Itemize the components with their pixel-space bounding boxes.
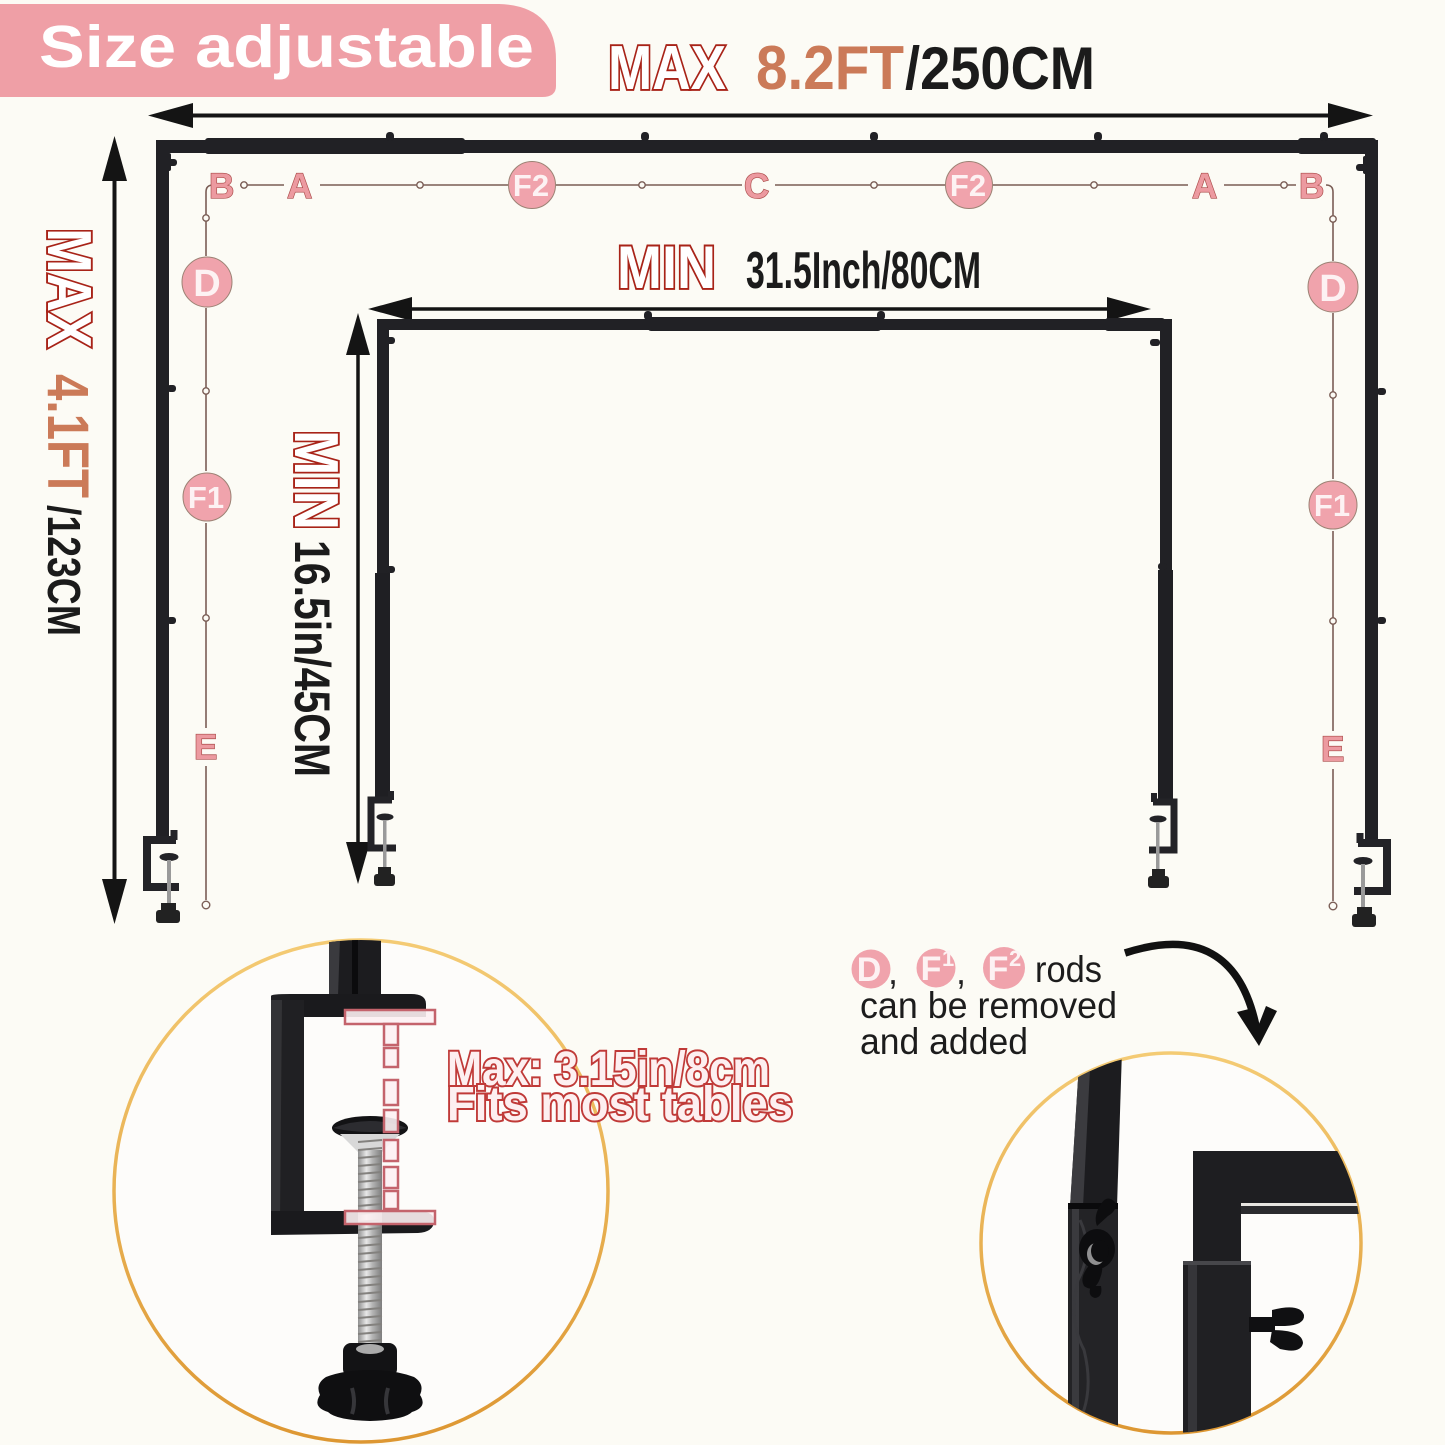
svg-text:A: A (287, 167, 312, 206)
svg-text:F1: F1 (188, 480, 224, 515)
svg-text:MAX: MAX (608, 34, 726, 103)
svg-text:E: E (1321, 730, 1344, 769)
svg-text:F: F (988, 950, 1009, 988)
svg-text:F2: F2 (513, 168, 549, 203)
svg-text:F: F (921, 950, 942, 988)
svg-text:31.5Inch/80CM: 31.5Inch/80CM (746, 242, 981, 300)
svg-text:1: 1 (942, 946, 954, 971)
svg-text:MIN: MIN (281, 430, 350, 530)
svg-text:E: E (194, 728, 217, 767)
svg-text:16.5in/45CM: 16.5in/45CM (284, 540, 340, 777)
svg-text:MAX: MAX (34, 228, 103, 348)
svg-text:rods: rods (1035, 949, 1102, 990)
svg-text:B: B (209, 167, 234, 206)
svg-text:MIN: MIN (617, 234, 716, 301)
svg-text:F1: F1 (1314, 488, 1350, 523)
svg-text:D: D (857, 951, 882, 989)
svg-text:4.1FT: 4.1FT (35, 374, 100, 498)
svg-text:D: D (1319, 268, 1346, 310)
svg-text:F2: F2 (950, 168, 986, 203)
svg-text:A: A (1192, 167, 1217, 206)
svg-text:/123CM: /123CM (38, 505, 90, 636)
svg-text:8.2FT: 8.2FT (756, 34, 904, 103)
svg-text:C: C (744, 167, 769, 206)
svg-text:Size adjustable: Size adjustable (39, 14, 534, 80)
svg-text:B: B (1299, 167, 1324, 206)
svg-text:can be removed: can be removed (860, 985, 1117, 1026)
svg-text:and added: and added (860, 1021, 1028, 1062)
svg-text:/250CM: /250CM (905, 35, 1095, 102)
svg-text:D: D (193, 263, 220, 305)
svg-text:Fits most tables: Fits most tables (447, 1078, 793, 1131)
svg-text:2: 2 (1009, 946, 1021, 971)
